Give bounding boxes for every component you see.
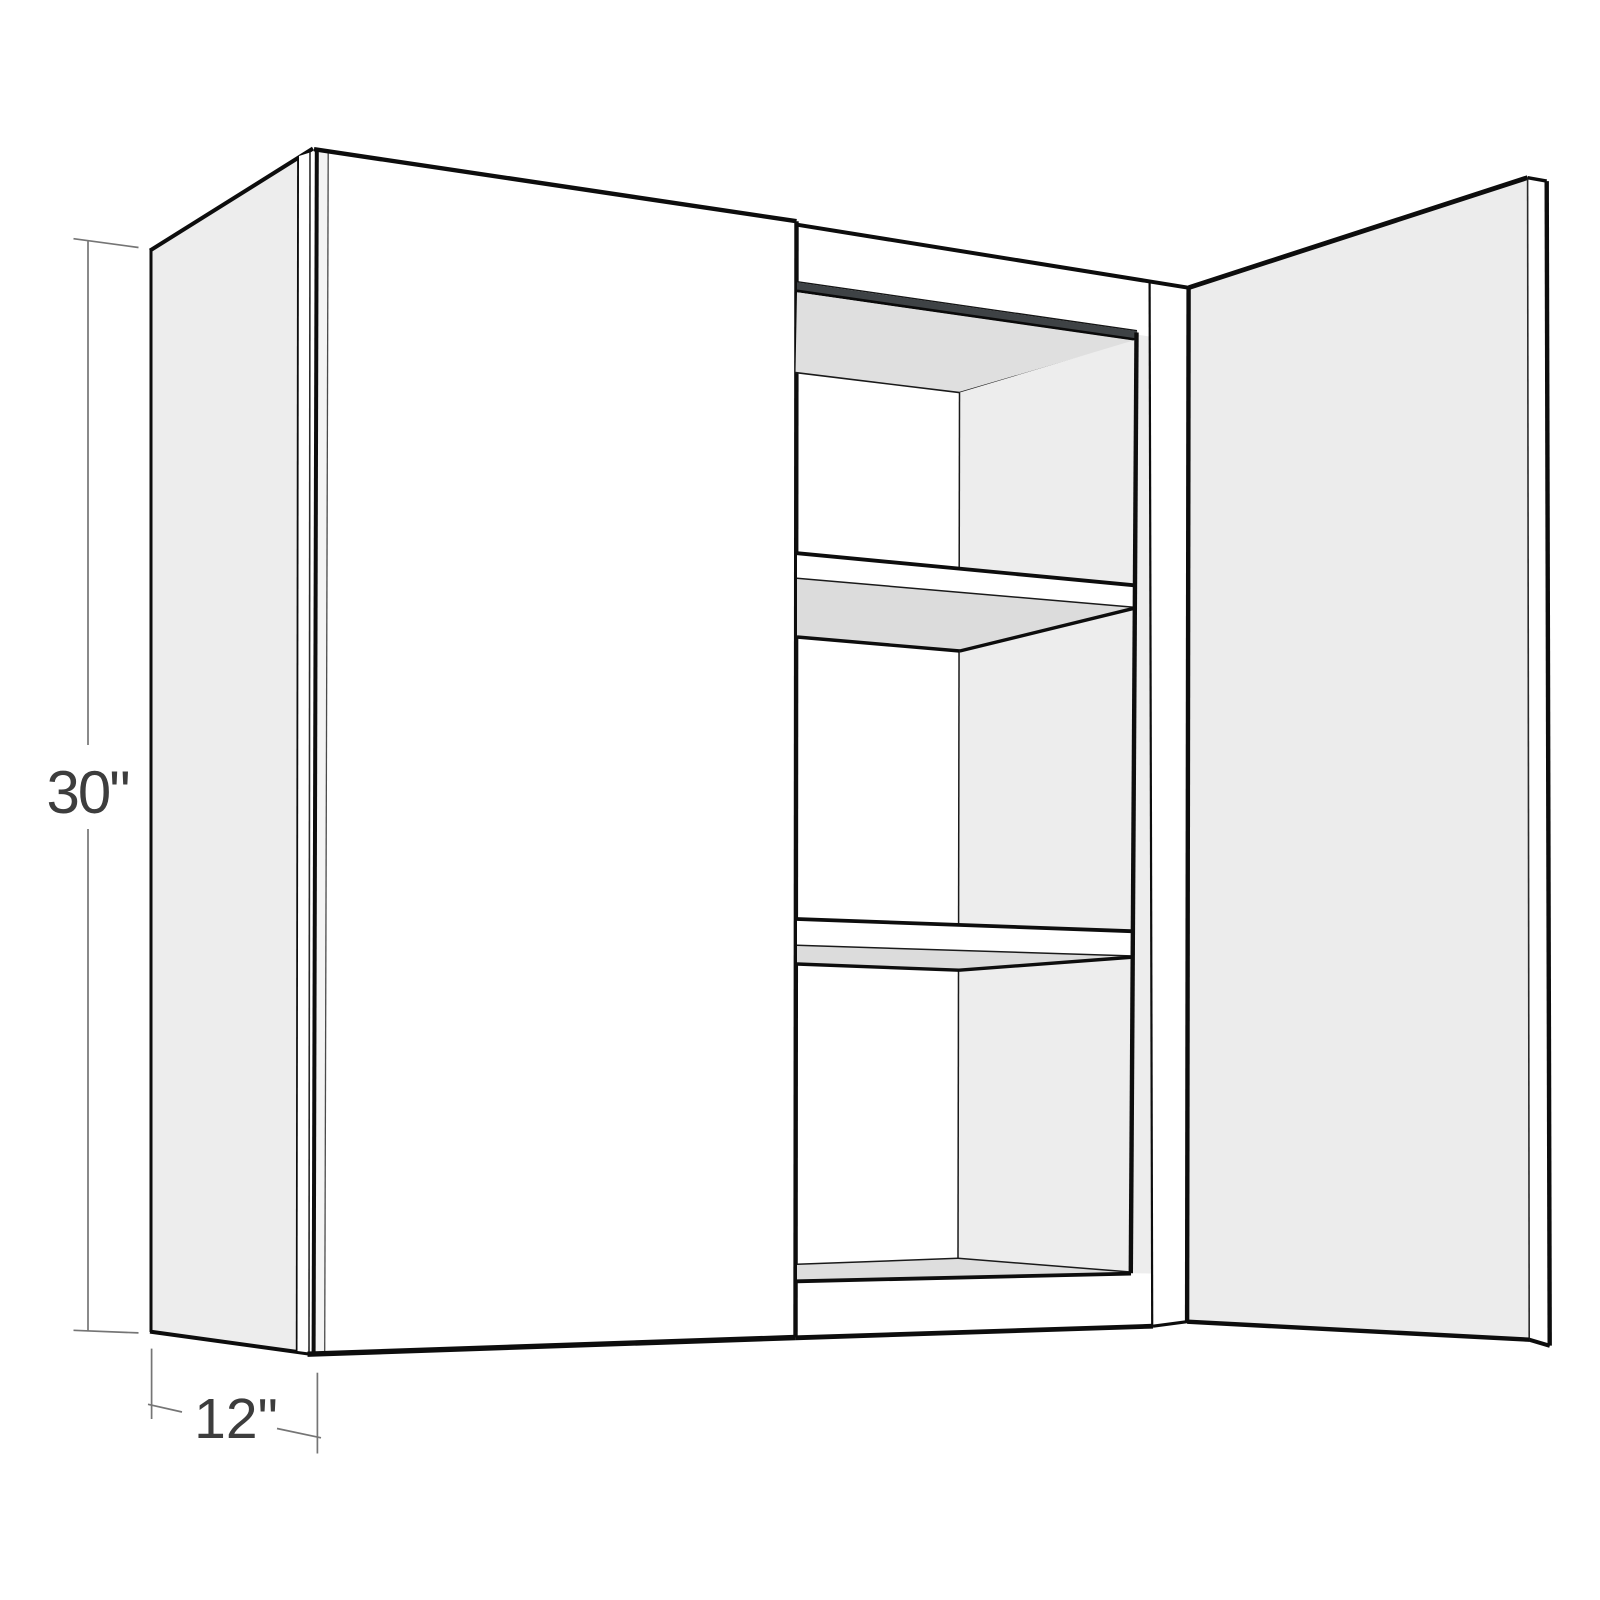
svg-text:30": 30" <box>46 759 128 826</box>
svg-text:12": 12" <box>194 1387 278 1451</box>
